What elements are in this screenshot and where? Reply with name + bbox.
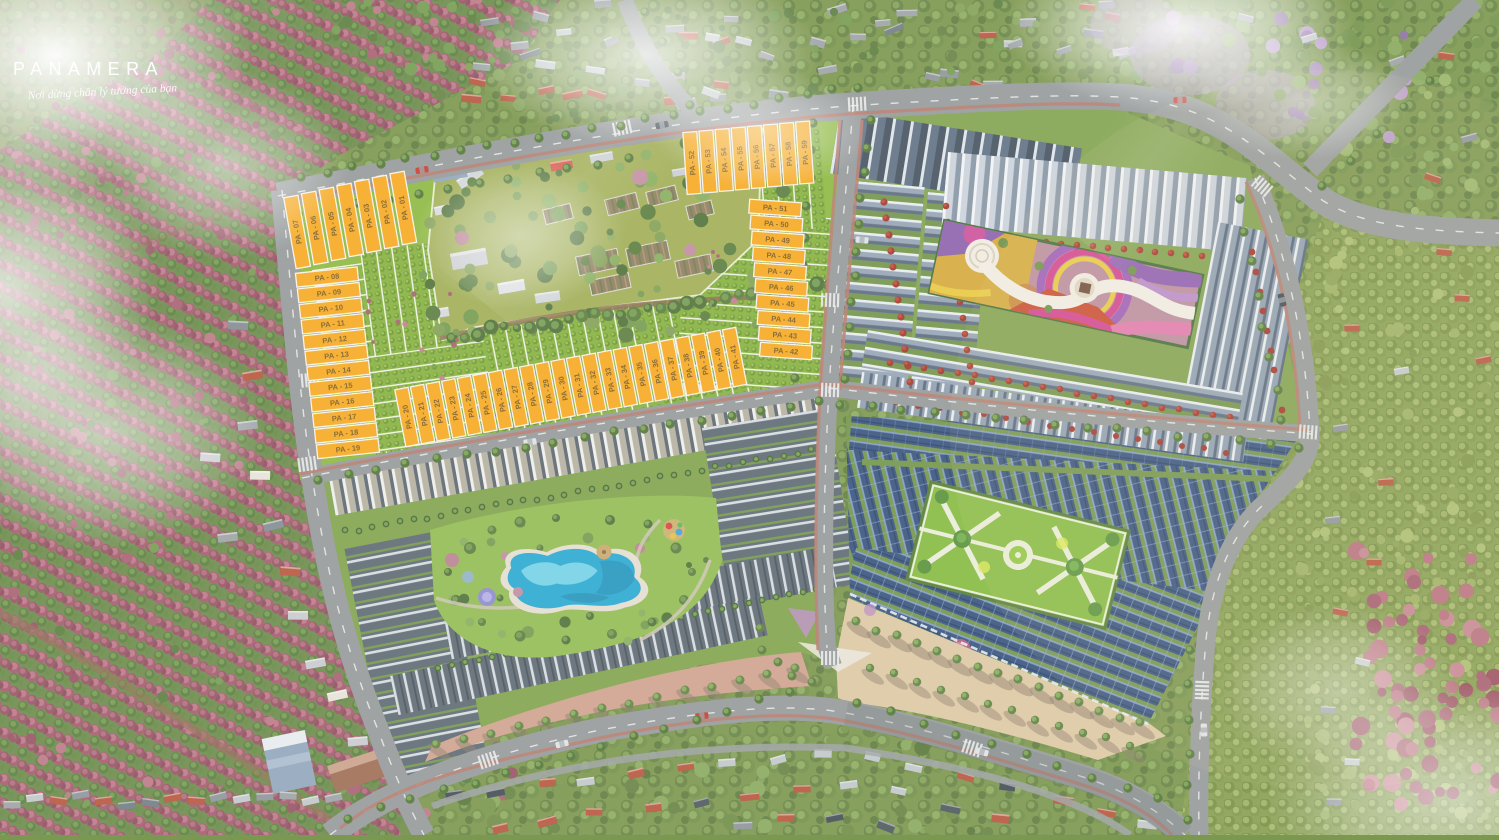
svg-text:PANAMERA: PANAMERA	[13, 59, 164, 79]
